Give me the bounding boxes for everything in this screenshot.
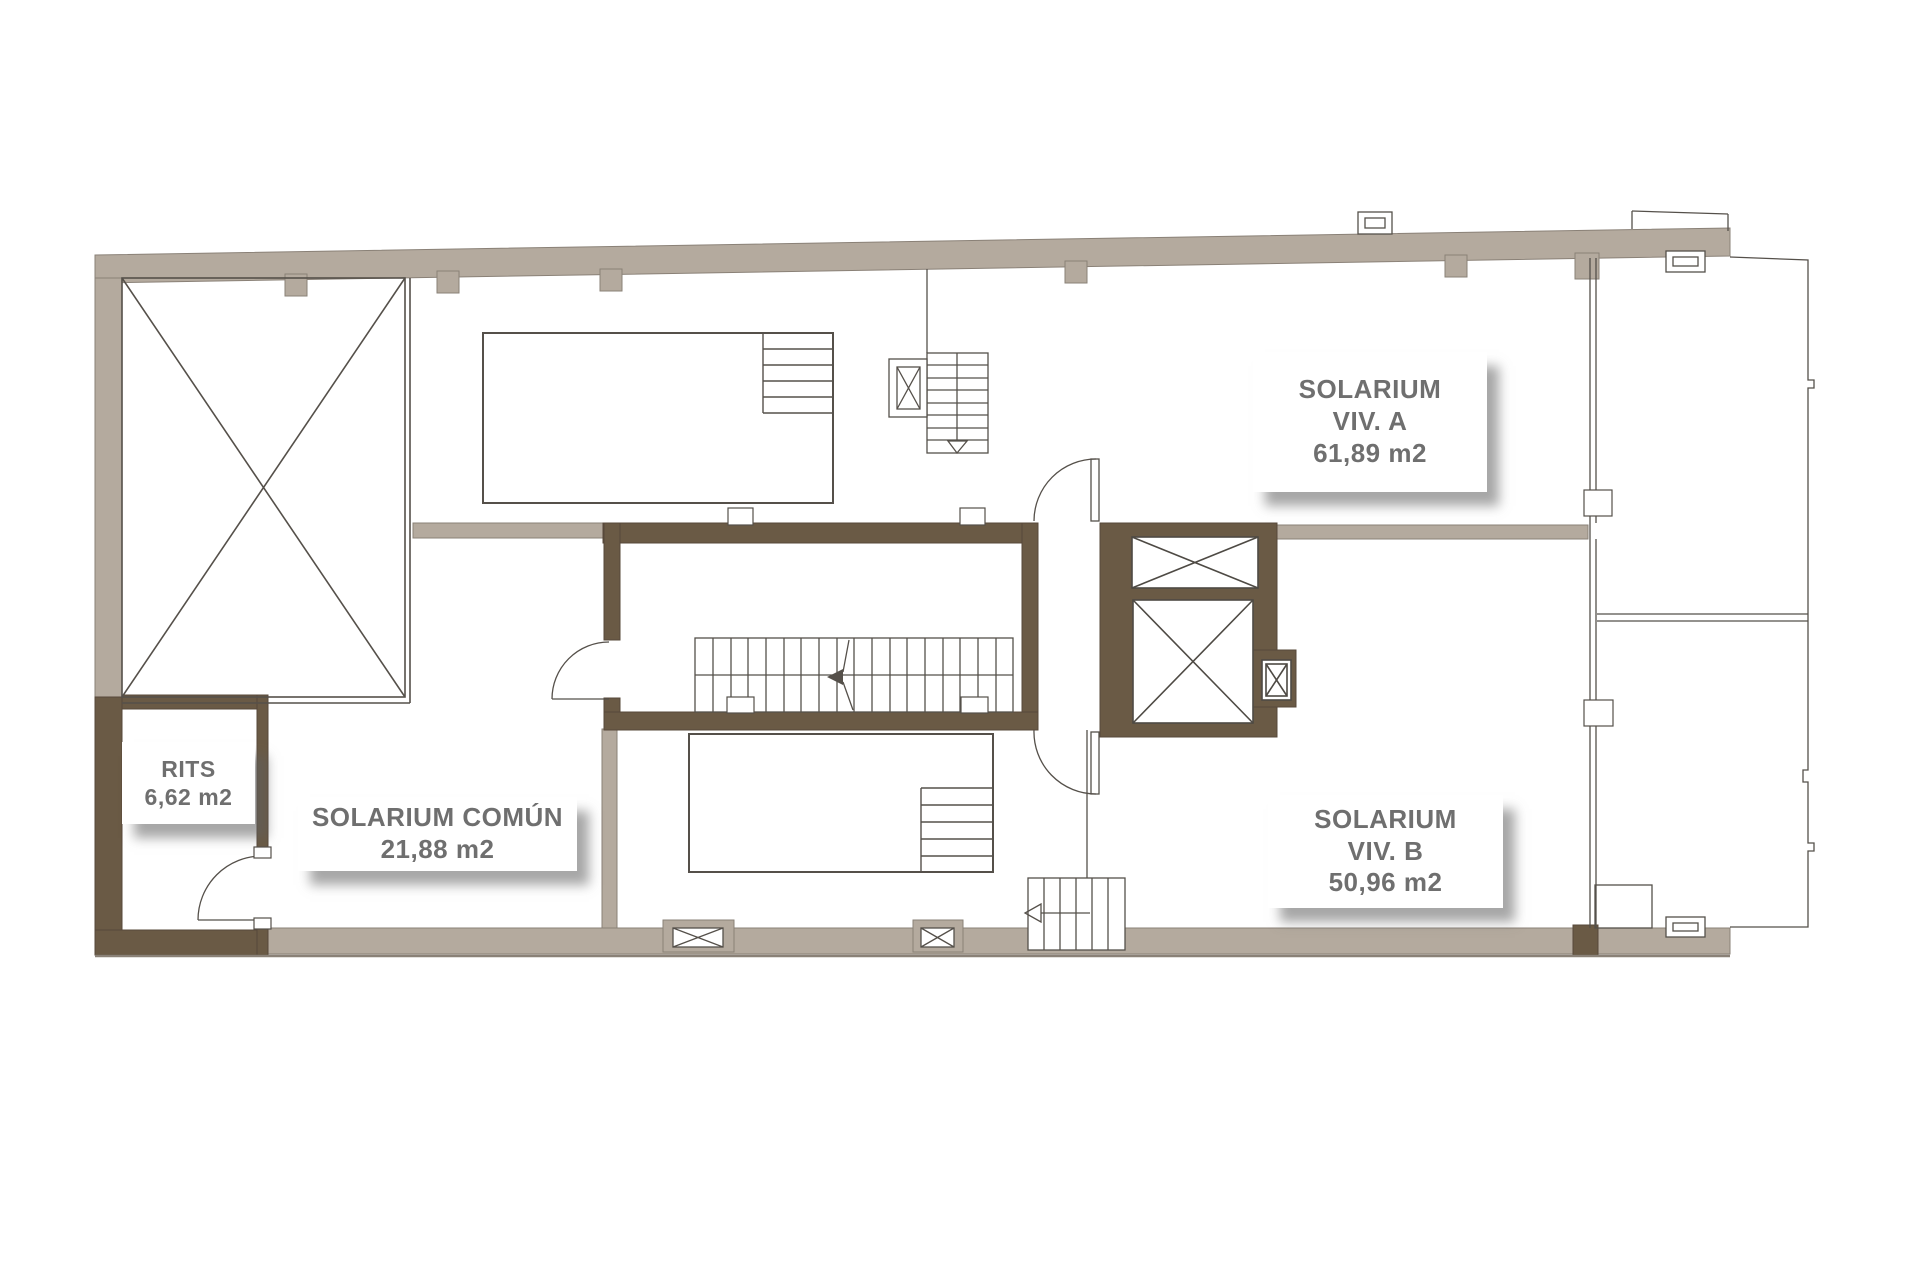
vent-top-mid: [1358, 212, 1392, 234]
exterior-stair-top: [927, 269, 988, 453]
terrace-boundary: [1730, 257, 1814, 927]
exterior-stair-shaft-box: [889, 359, 927, 417]
room-name: RITS: [161, 755, 215, 783]
divider-wall-west: [413, 523, 603, 538]
column-stub: [1445, 255, 1467, 277]
core-right-wall: [1022, 523, 1038, 730]
room-label-solarium-a: SOLARIUM VIV. A 61,89 m2: [1253, 352, 1487, 492]
core-bottom-wall: [604, 712, 1038, 730]
top-wall: [95, 228, 1730, 283]
door-solarium-b: [1034, 730, 1099, 794]
column-stub: [1065, 261, 1087, 283]
elevator-shaft-main: [1133, 600, 1253, 723]
bottom-wall-rits: [95, 930, 268, 955]
core-top-wall: [603, 523, 1022, 543]
room-unit: VIV. A: [1333, 406, 1408, 438]
comun-divider-wall: [602, 729, 617, 928]
column-stub: [600, 269, 622, 291]
room-area: 21,88 m2: [381, 834, 495, 866]
door-solarium-a: [1034, 459, 1099, 521]
room-name: SOLARIUM: [1299, 374, 1442, 406]
vent-top-right: [1666, 251, 1705, 272]
pool-bottom-steps: [921, 788, 993, 872]
left-wall-upper: [95, 278, 122, 697]
pool-bottom: [689, 734, 993, 872]
room-area: 6,62 m2: [145, 783, 233, 811]
room-label-rits: RITS 6,62 m2: [122, 742, 255, 824]
pillar: [1573, 925, 1598, 955]
left-wall-lower: [95, 697, 122, 955]
room-name: SOLARIUM COMÚN: [312, 802, 563, 834]
core-left-wall-upper: [604, 523, 620, 640]
vent-x-box: [673, 928, 723, 947]
pool-top: [483, 333, 833, 503]
room-area: 50,96 m2: [1329, 867, 1443, 899]
rits-right-wall-upper: [257, 695, 268, 856]
exterior-stair-bottom: [1025, 730, 1125, 950]
door-rits: [198, 856, 262, 920]
column-stub: [437, 271, 459, 293]
room-name: SOLARIUM: [1314, 804, 1457, 836]
room-label-solarium-b: SOLARIUM VIV. B 50,96 m2: [1268, 795, 1503, 908]
void-skylight: [122, 278, 410, 703]
right-terrace: [1590, 211, 1814, 928]
bottom-wall: [268, 928, 1730, 954]
room-area: 61,89 m2: [1313, 438, 1427, 470]
divider-wall-east: [1277, 525, 1588, 539]
elevator-shaft-small: [1262, 660, 1291, 700]
door-core-west: [552, 642, 609, 699]
floorplan-drawing: [0, 0, 1920, 1280]
room-label-solarium-comun: SOLARIUM COMÚN 21,88 m2: [298, 797, 577, 871]
vent-bottom-right: [1666, 917, 1705, 937]
floorplan-page: { "plan": { "type": "architectural-floor…: [0, 0, 1920, 1280]
pool-top-steps: [763, 333, 833, 413]
elevator-shaft-upper: [1132, 537, 1258, 588]
terrace-detail-rect: [1595, 885, 1652, 928]
room-unit: VIV. B: [1348, 836, 1424, 868]
vent-x-box: [921, 928, 954, 947]
